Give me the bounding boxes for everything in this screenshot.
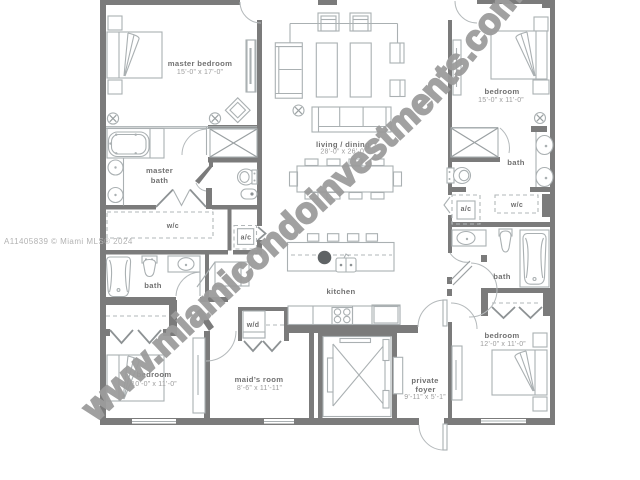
svg-text:w/d: w/d [246,322,260,329]
svg-text:kitchen: kitchen [326,287,355,296]
svg-text:maid’s room: maid’s room [235,375,284,384]
svg-text:A11405839 © Miami MLS® 2024: A11405839 © Miami MLS® 2024 [4,237,133,246]
svg-text:bath: bath [493,272,510,281]
svg-text:9’-11” x 5’-1”: 9’-11” x 5’-1” [404,394,446,401]
svg-text:w/c: w/c [510,202,523,209]
svg-text:bath: bath [507,158,524,167]
svg-text:15’-0” x 17’-0”: 15’-0” x 17’-0” [177,69,224,76]
svg-text:a/c: a/c [461,206,472,213]
svg-text:12’-0” x 11’-0”: 12’-0” x 11’-0” [480,341,526,348]
svg-text:bath: bath [144,281,161,290]
svg-text:8’-6” x 11’-11”: 8’-6” x 11’-11” [237,385,283,392]
svg-text:bath: bath [151,176,168,185]
svg-text:w/c: w/c [166,223,179,230]
svg-text:foyer: foyer [415,385,435,394]
svg-text:bedroom: bedroom [485,87,520,96]
svg-text:master: master [146,166,173,175]
svg-text:private: private [411,376,439,385]
svg-text:bedroom: bedroom [485,331,520,340]
svg-text:master bedroom: master bedroom [168,59,232,68]
svg-text:15’-0” x 11’-0”: 15’-0” x 11’-0” [478,97,524,104]
